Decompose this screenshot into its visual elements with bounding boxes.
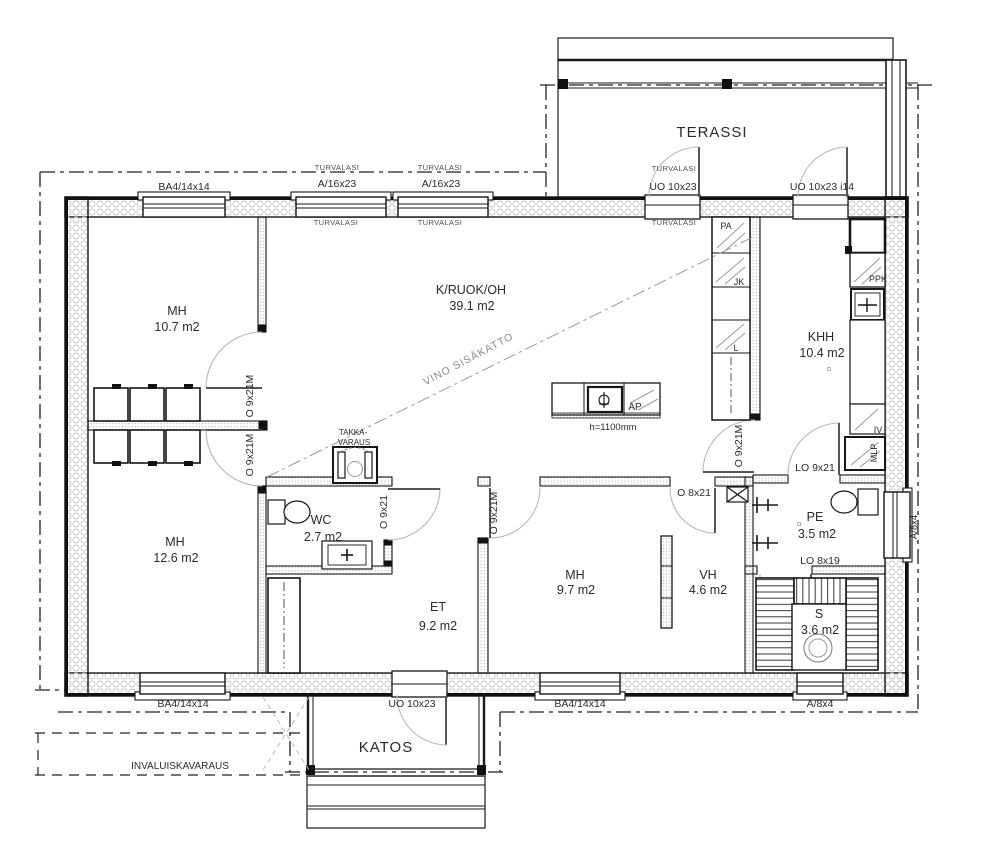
room-label-sauna: S (815, 607, 823, 621)
fireplace-label-1: TAKKA- (339, 428, 368, 437)
room-area-khh: 10.4 m2 (799, 346, 844, 360)
terrace-post (558, 79, 568, 89)
room-label-mh1: MH (167, 304, 186, 318)
room-label-khh: KHH (808, 330, 834, 344)
appliance-jk: JK (734, 277, 745, 287)
room-label-et: ET (430, 600, 446, 614)
wc-toilet-tank (268, 500, 285, 524)
window-ba4-bot2 (535, 673, 625, 700)
door-label-khh: O 9x21M (733, 425, 745, 468)
appliance-ppk: PPK (869, 274, 887, 284)
island-stove (588, 387, 622, 412)
door-label-mh1: O 9x21M (244, 375, 256, 418)
window-a8x4-right (884, 488, 912, 562)
room-area-kruokoh: 39.1 m2 (449, 299, 494, 313)
room-area-pe: 3.5 m2 (798, 527, 836, 541)
window-label-a16-2: A/16x23 (422, 178, 461, 190)
turvalasi-label: TURVALASI (315, 163, 360, 172)
floor-drain-symbol: ¤ (796, 519, 801, 529)
room-area-vh: 4.6 m2 (689, 583, 727, 597)
pe-toilet-bowl (831, 491, 857, 513)
room-area-mh1: 10.7 m2 (154, 320, 199, 334)
turvalasi-label: TURVALASI (418, 163, 463, 172)
room-label-katos: KATOS (359, 739, 413, 756)
wc-toilet-bowl (284, 501, 310, 523)
room-area-et: 9.2 m2 (419, 619, 457, 633)
vent-box (727, 487, 748, 502)
door-label-uo-bottom: UO 10x23 (388, 698, 435, 710)
window-label-a8x4-right: A/8x4 (909, 515, 920, 539)
room-area-mh3: 9.7 m2 (557, 583, 595, 597)
window-label-a8x4-bot: A/8x4 (807, 698, 834, 710)
room-label-wc: WC (311, 513, 332, 527)
door-label-mh3: O 9x21M (488, 492, 500, 535)
room-label-vh: VH (699, 568, 716, 582)
window-a16-1 (291, 192, 391, 217)
door-uo-10x23 (645, 195, 700, 219)
khh-worktop (850, 320, 885, 404)
ramp-label: INVALUISKAVARAUS (131, 761, 229, 772)
pe-shower-fitting (752, 497, 778, 513)
window-ba4-bot1 (135, 673, 230, 700)
room-label-kruokoh: K/RUOK/OH (436, 283, 506, 297)
window-label-ba4-top: BA4/14x14 (158, 181, 210, 193)
window-ba4-top (138, 192, 230, 217)
door-label-pe: LO 9x21 (795, 462, 835, 474)
door-label-uo2: UO 10x23 i14 (790, 181, 854, 193)
appliance-mlp: MLP (869, 444, 879, 463)
shelf-mh3-vh (661, 536, 672, 628)
room-area-wc: 2.7 m2 (304, 530, 342, 544)
fireplace-takka (333, 447, 377, 483)
room-area-sauna: 3.6 m2 (801, 623, 839, 637)
window-label-ba4-bot2: BA4/14x14 (554, 698, 606, 710)
appliance-l: L (733, 343, 738, 353)
closet-et (268, 578, 300, 673)
fireplace-label-2: VARAUS (338, 438, 370, 447)
room-label-mh3: MH (565, 568, 584, 582)
room-area-mh2: 12.6 m2 (153, 551, 198, 565)
room-label-terassi: TERASSI (676, 124, 747, 141)
turvalasi-label: TURVALASI (652, 164, 697, 173)
windows-top (138, 192, 493, 217)
window-label-a16-1: A/16x23 (318, 178, 357, 190)
door-label-vh: O 8x21 (677, 487, 711, 499)
window-a8x4-bot (793, 673, 847, 700)
katos-porch (263, 695, 486, 828)
terrace-corner-post (886, 60, 906, 197)
window-a16-2 (393, 192, 493, 217)
door-label-sauna: LO 8x19 (800, 555, 840, 567)
sauna-bench-left (756, 578, 794, 670)
kitchen-island (552, 383, 660, 418)
room-label-pe: PE (807, 510, 824, 524)
sauna-bench-right (846, 578, 878, 670)
khh-appliance-box (850, 219, 885, 253)
pe-toilet-tank (858, 489, 878, 515)
cabinet-column (712, 217, 750, 420)
terrace-post (722, 79, 732, 89)
sauna-bench-top (794, 578, 846, 604)
pe-shower-fitting (752, 535, 778, 551)
door-label-mh2: O 9x21M (244, 434, 256, 477)
appliance-iv: IV (874, 425, 883, 435)
floor-drain-symbol: ¤ (826, 364, 831, 374)
turvalasi-label: TURVALASI (652, 218, 697, 227)
floor-plan-svg: TERASSI TURVALASI TURVALASI TURVALASI TU… (0, 0, 996, 852)
appliance-pa: PA (720, 221, 731, 231)
turvalasi-label: TURVALASI (314, 218, 359, 227)
window-label-ba4-bot1: BA4/14x14 (157, 698, 209, 710)
room-label-mh2: MH (165, 535, 184, 549)
door-label-uo1: UO 10x23 (649, 181, 696, 193)
turvalasi-label: TURVALASI (418, 218, 463, 227)
island-ap-label: AP (628, 402, 642, 413)
terrace (558, 38, 918, 197)
island-height-label: h=1100mm (589, 422, 636, 433)
door-label-wc: O 9x21 (378, 495, 390, 529)
sloped-ceiling-label: VINO SISÄKATTO (421, 330, 515, 388)
door-uo-10x23-i14 (793, 195, 848, 219)
floor-plan-page: TERASSI TURVALASI TURVALASI TURVALASI TU… (0, 0, 996, 852)
